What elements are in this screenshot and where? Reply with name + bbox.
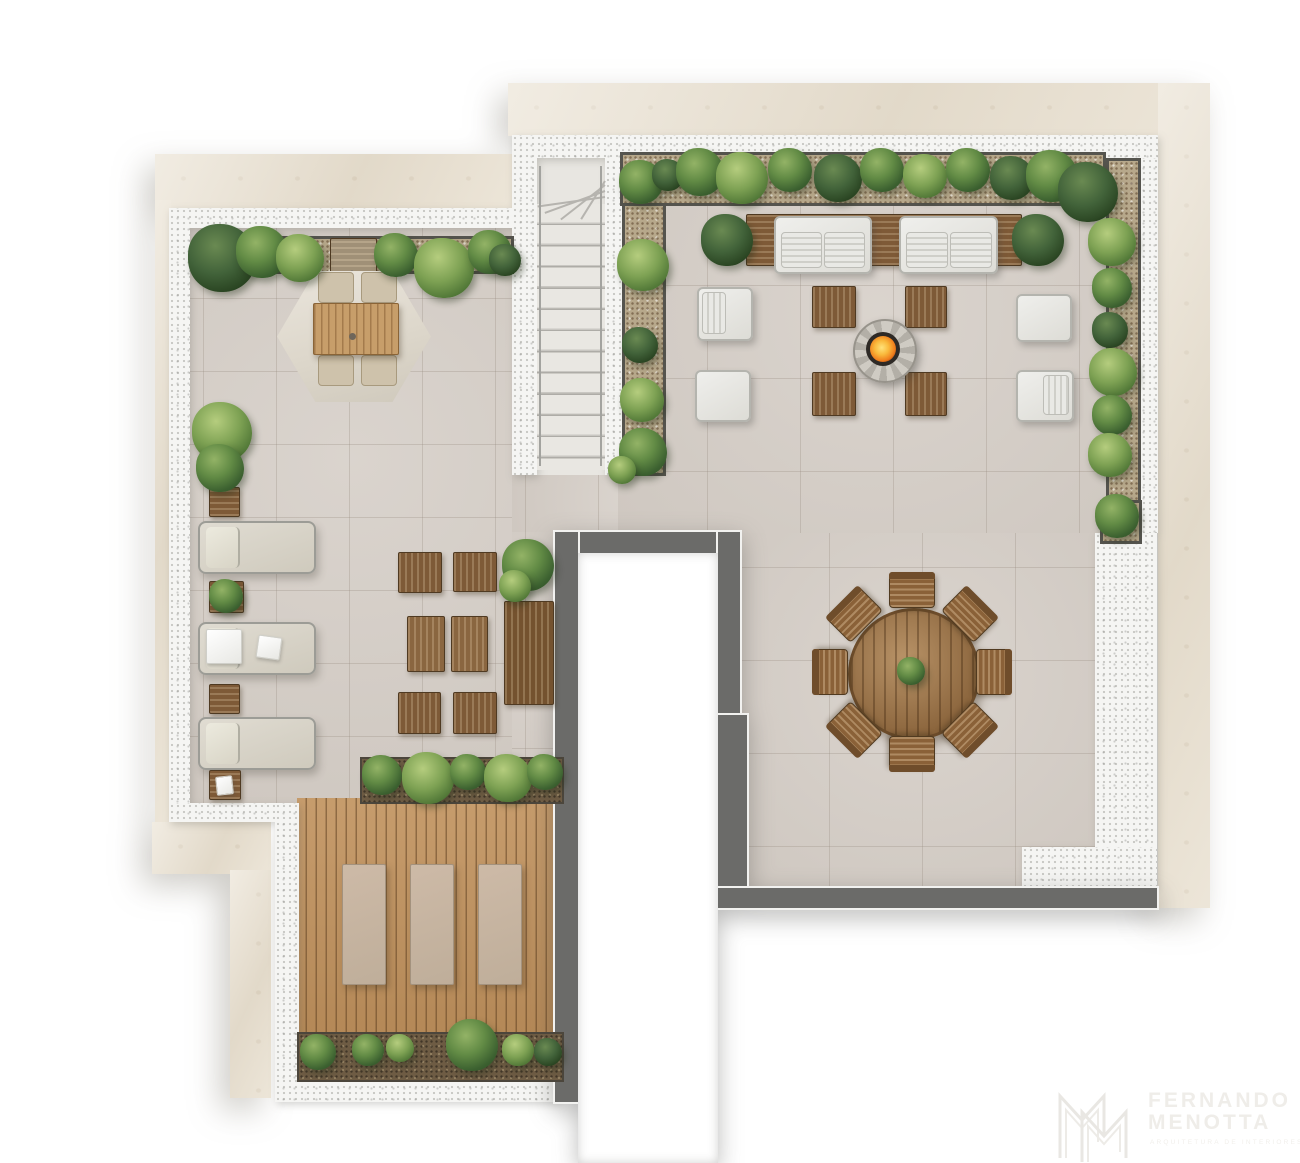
parasol-dining-table bbox=[313, 303, 399, 355]
sun-lounger bbox=[198, 622, 316, 675]
outdoor-sofa bbox=[774, 216, 872, 274]
lounge-chair bbox=[695, 370, 751, 422]
brand-tagline: ARQUITETURA DE INTERIORES bbox=[1150, 1139, 1300, 1146]
wall-left-terrace-left bbox=[169, 208, 190, 822]
stair-base bbox=[537, 158, 605, 475]
sunbathing-mat bbox=[342, 864, 386, 985]
planter-layer bbox=[0, 0, 1300, 1163]
wood-console-table bbox=[504, 601, 554, 705]
stair-winder-line bbox=[545, 190, 606, 214]
plant bbox=[768, 148, 812, 192]
stair-winder-line bbox=[580, 180, 606, 219]
outdoor-sofa bbox=[899, 216, 998, 274]
round-table-chair bbox=[889, 736, 935, 772]
open-to-below-void bbox=[578, 553, 718, 1163]
sofa-cushion bbox=[824, 232, 865, 268]
plant bbox=[1088, 218, 1136, 266]
lounger-headrest bbox=[206, 628, 240, 669]
brand-line1: FERNANDO bbox=[1148, 1090, 1291, 1112]
plant bbox=[196, 444, 244, 492]
lounge-chair bbox=[1016, 294, 1072, 342]
plant bbox=[402, 752, 454, 804]
wood-stool bbox=[453, 552, 497, 592]
plant bbox=[209, 579, 243, 613]
sofa-bench-console bbox=[746, 214, 1022, 266]
plant bbox=[188, 224, 256, 292]
wall-left-terrace-top bbox=[169, 208, 518, 228]
parasol-canopy bbox=[277, 271, 431, 402]
plant bbox=[619, 160, 663, 204]
plant bbox=[1026, 150, 1078, 202]
plant bbox=[502, 1034, 534, 1066]
plant bbox=[676, 148, 724, 196]
brand-monogram-icon bbox=[1052, 1082, 1140, 1162]
plant bbox=[300, 1034, 336, 1070]
plant bbox=[446, 1019, 498, 1071]
wood-low-table bbox=[451, 616, 488, 672]
plant bbox=[374, 233, 418, 277]
wall-right-upper bbox=[1135, 158, 1158, 533]
round-table-chair bbox=[825, 701, 883, 759]
magazine bbox=[215, 775, 234, 796]
void-wall-left bbox=[555, 532, 578, 1102]
tile-floor-right-terrace-upper bbox=[618, 158, 1135, 533]
plant bbox=[499, 570, 531, 602]
sofa-cushion bbox=[781, 232, 822, 268]
plant bbox=[414, 238, 474, 298]
void-wall-right-lower bbox=[718, 715, 747, 893]
plant bbox=[622, 327, 658, 363]
round-table-chairs-layer bbox=[0, 0, 1300, 1163]
plant bbox=[620, 378, 664, 422]
round-table-chair bbox=[825, 585, 883, 643]
planter-pot-loungers bbox=[209, 581, 244, 613]
planter-pot-right-bottom bbox=[1100, 500, 1142, 544]
plant bbox=[534, 1038, 562, 1066]
planter-deck-bottom bbox=[297, 1032, 564, 1082]
sofa-cushion bbox=[906, 232, 948, 268]
wall-layer bbox=[0, 0, 1300, 1163]
round-table-chair bbox=[976, 649, 1012, 695]
coffee-table bbox=[812, 372, 856, 416]
wood-deck bbox=[297, 798, 560, 1075]
stair-winder-line bbox=[538, 196, 606, 207]
stone-border-left-top bbox=[155, 154, 518, 208]
stair-handrail bbox=[600, 166, 602, 466]
stone-border-bottom-step bbox=[152, 822, 271, 874]
stair-treads bbox=[537, 204, 605, 470]
plant bbox=[716, 152, 768, 204]
dining-chair bbox=[318, 272, 354, 303]
wall-top-right-block bbox=[512, 135, 1158, 158]
plant bbox=[608, 456, 636, 484]
parasol-base bbox=[330, 238, 377, 274]
tile-floor-passage bbox=[512, 475, 740, 532]
stair-handrail bbox=[539, 166, 541, 466]
wall-bottom-right-el bbox=[1022, 847, 1157, 888]
plant bbox=[352, 1034, 384, 1066]
tile-floor-left-terrace bbox=[190, 228, 512, 803]
coffee-table bbox=[905, 372, 947, 416]
floor-layer bbox=[0, 0, 1300, 1163]
dining-chair bbox=[361, 355, 397, 386]
towel bbox=[206, 629, 242, 664]
stone-border-left-column bbox=[155, 200, 171, 825]
towel bbox=[256, 634, 283, 660]
wall-stair-left bbox=[512, 135, 537, 475]
plant bbox=[1089, 348, 1137, 396]
stone-border-right-column bbox=[1158, 83, 1210, 908]
plant bbox=[1088, 433, 1132, 477]
wall-deck-left bbox=[275, 803, 299, 1102]
plant bbox=[903, 154, 947, 198]
parapet-wall-bottom bbox=[718, 888, 1157, 908]
plant bbox=[484, 754, 532, 802]
stair-layer bbox=[0, 0, 1300, 1163]
brand-line2: MENOTTA bbox=[1148, 1112, 1291, 1134]
lounge-chair bbox=[697, 287, 753, 341]
plant bbox=[990, 156, 1034, 200]
round-dining-table bbox=[848, 608, 980, 740]
plant bbox=[362, 755, 402, 795]
lounger-headrest bbox=[206, 527, 240, 568]
tile-floor-void-side bbox=[512, 532, 555, 810]
plant bbox=[897, 657, 925, 685]
planter-deck-top bbox=[360, 757, 564, 804]
plant bbox=[946, 148, 990, 192]
sun-lounger bbox=[198, 717, 316, 770]
sunbathing-mat bbox=[478, 864, 522, 985]
side-table bbox=[209, 487, 240, 517]
fire-pit bbox=[853, 319, 917, 383]
plant bbox=[814, 154, 862, 202]
side-table bbox=[209, 770, 241, 800]
plant bbox=[1092, 268, 1132, 308]
folded-cushion bbox=[1043, 375, 1069, 415]
fire-flame bbox=[870, 336, 896, 362]
wall-left-terrace-bottom bbox=[169, 803, 277, 822]
wood-stool bbox=[398, 552, 442, 593]
plant bbox=[527, 754, 563, 790]
fire-pit-bowl bbox=[866, 332, 900, 366]
void-wall-top bbox=[555, 532, 740, 553]
plant bbox=[652, 159, 684, 191]
planter-stair-side bbox=[622, 158, 666, 476]
lounge-chair bbox=[1016, 370, 1074, 422]
plant bbox=[489, 244, 521, 276]
sun-lounger bbox=[198, 521, 316, 574]
stone-border-top-band bbox=[508, 83, 1210, 136]
folded-cushion bbox=[702, 292, 726, 334]
wood-stool bbox=[453, 692, 497, 734]
plant bbox=[276, 234, 324, 282]
brand-name: FERNANDO MENOTTA bbox=[1148, 1090, 1291, 1134]
lounger-headrest bbox=[206, 723, 240, 764]
round-table-chair bbox=[889, 572, 935, 608]
void-wall-right-upper bbox=[718, 532, 740, 722]
plants-layer bbox=[0, 0, 1300, 1163]
wall-deck-bottom bbox=[275, 1078, 560, 1102]
coffee-table bbox=[905, 286, 947, 328]
plant bbox=[619, 428, 667, 476]
plant bbox=[502, 539, 554, 591]
plant bbox=[1058, 162, 1118, 222]
round-table-chair bbox=[941, 585, 999, 643]
stone-border-bottom-column bbox=[230, 870, 271, 1098]
stair-winder-line bbox=[560, 184, 605, 220]
plant bbox=[386, 1034, 414, 1062]
parasol-pole-arm bbox=[351, 270, 353, 340]
stone-border-layer bbox=[0, 0, 1300, 1163]
dark-wall-layer bbox=[0, 0, 1300, 1163]
floor-plan-canvas: FERNANDO MENOTTA ARQUITETURA DE INTERIOR… bbox=[0, 0, 1300, 1163]
plant bbox=[236, 226, 288, 278]
wall-stair-right bbox=[605, 135, 623, 475]
tile-floor-right-terrace-lower bbox=[740, 533, 1095, 888]
sunbathing-mat bbox=[410, 864, 454, 985]
round-table-chair bbox=[812, 649, 848, 695]
watermark: FERNANDO MENOTTA ARQUITETURA DE INTERIOR… bbox=[1052, 1082, 1297, 1162]
sofa-cushion bbox=[950, 232, 992, 268]
dining-chair bbox=[318, 355, 354, 386]
coffee-table bbox=[812, 286, 856, 328]
plant bbox=[1092, 395, 1132, 435]
planter-right-terrace-top bbox=[620, 152, 1106, 206]
wood-low-table bbox=[407, 616, 445, 672]
dining-chair bbox=[361, 272, 397, 303]
plant bbox=[617, 239, 669, 291]
furniture-layer bbox=[0, 0, 1300, 1163]
plant bbox=[468, 230, 512, 274]
planter-left-terrace-top bbox=[232, 236, 514, 274]
plant bbox=[860, 148, 904, 192]
plant bbox=[701, 214, 753, 266]
plant bbox=[1092, 312, 1128, 348]
side-table bbox=[209, 684, 240, 714]
round-table-chair bbox=[941, 701, 999, 759]
wall-right-lower bbox=[1095, 533, 1157, 888]
plant bbox=[192, 402, 252, 462]
plant bbox=[1095, 494, 1139, 538]
plant bbox=[450, 754, 486, 790]
planter-right-strip bbox=[1106, 158, 1141, 539]
plant bbox=[1012, 214, 1064, 266]
parasol-pole-hub bbox=[349, 333, 356, 340]
wood-stool bbox=[398, 692, 441, 734]
